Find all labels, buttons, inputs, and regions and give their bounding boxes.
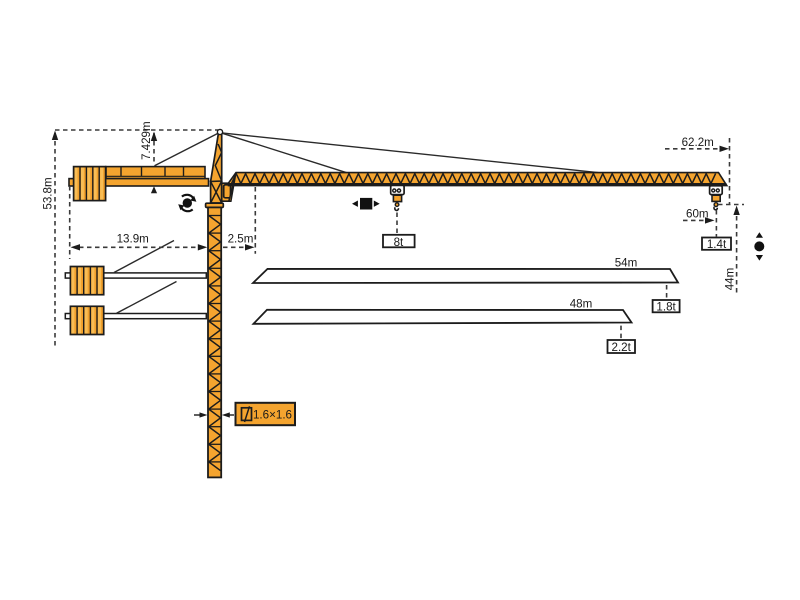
svg-text:48m: 48m bbox=[570, 297, 593, 310]
svg-text:62.2m: 62.2m bbox=[682, 136, 714, 149]
svg-text:44m: 44m bbox=[724, 268, 737, 291]
svg-text:1.8t: 1.8t bbox=[656, 301, 676, 314]
svg-text:1.4t: 1.4t bbox=[707, 238, 727, 251]
svg-text:54m: 54m bbox=[615, 257, 638, 270]
svg-text:8t: 8t bbox=[394, 236, 404, 249]
svg-text:2.2t: 2.2t bbox=[612, 341, 632, 354]
svg-text:2.5m: 2.5m bbox=[228, 232, 254, 245]
svg-text:1.6×1.6: 1.6×1.6 bbox=[253, 408, 292, 421]
svg-text:7.429m: 7.429m bbox=[140, 121, 153, 160]
svg-text:53.8m: 53.8m bbox=[41, 177, 54, 209]
svg-text:13.9m: 13.9m bbox=[117, 232, 149, 245]
